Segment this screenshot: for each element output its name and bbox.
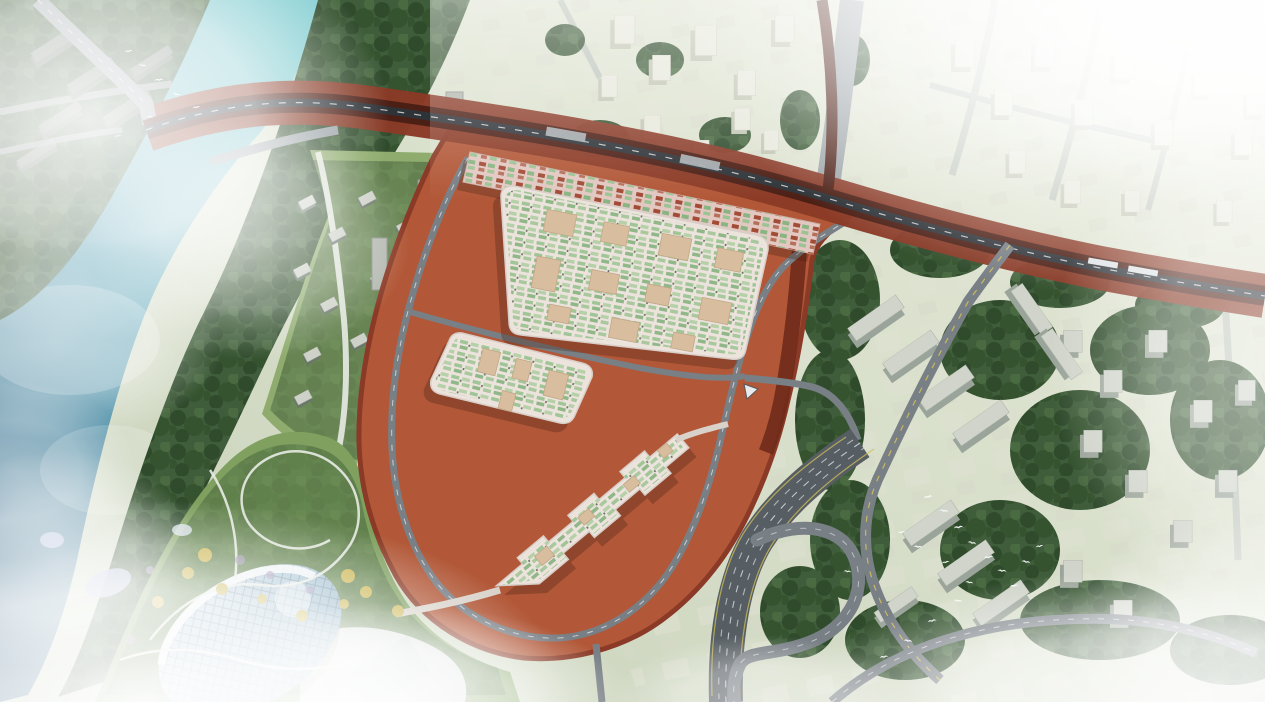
- aerial-rendering: [0, 0, 1265, 702]
- render-canvas: [0, 0, 1265, 702]
